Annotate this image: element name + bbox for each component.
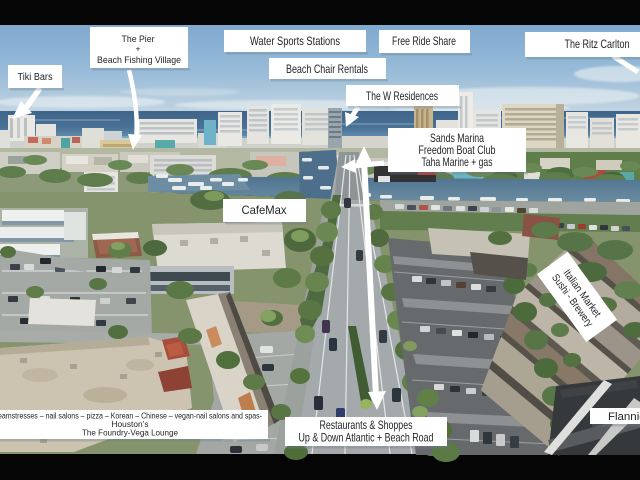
svg-text:The Foundry-Vega Lounge: The Foundry-Vega Lounge	[82, 429, 179, 438]
svg-text:Up & Down Atlantic + Beach Roa: Up & Down Atlantic + Beach Road	[299, 431, 434, 445]
svg-text:Flanniga: Flanniga	[608, 411, 640, 423]
svg-text:Taha Marine + gas: Taha Marine + gas	[422, 155, 493, 169]
svg-text:The W Residences: The W Residences	[366, 89, 438, 103]
svg-text:Water Sports Stations: Water Sports Stations	[250, 34, 340, 48]
svg-text:+: +	[136, 44, 141, 54]
svg-text:Free Ride Share: Free Ride Share	[392, 34, 456, 48]
svg-text:Tiki Bars: Tiki Bars	[18, 72, 53, 83]
svg-text:The Ritz Carlton: The Ritz Carlton	[565, 37, 630, 51]
svg-text:CafeMax: CafeMax	[242, 203, 287, 217]
svg-text:Beach Fishing Village: Beach Fishing Village	[97, 55, 181, 66]
svg-text:Beach Chair Rentals: Beach Chair Rentals	[286, 62, 368, 76]
